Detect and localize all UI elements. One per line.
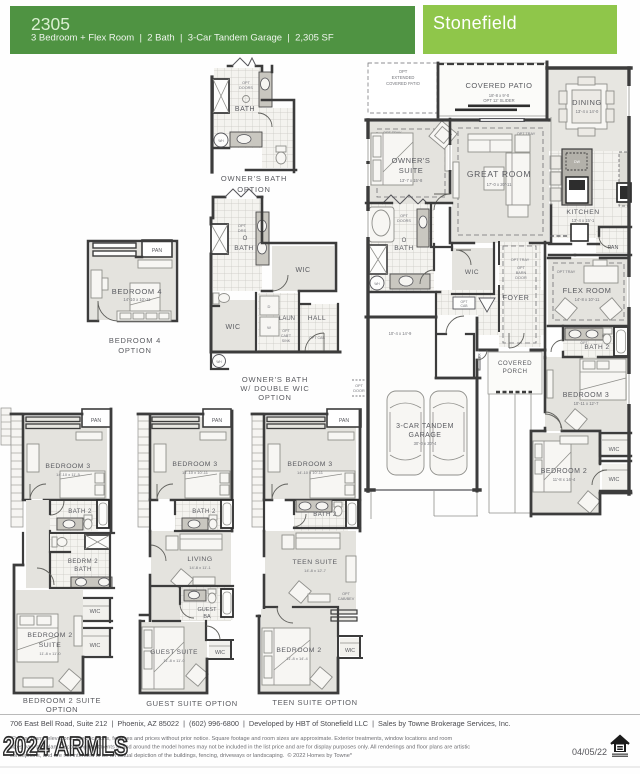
svg-text:BEDRM 2: BEDRM 2 xyxy=(68,559,98,565)
svg-text:D: D xyxy=(268,304,271,309)
svg-text:WH: WH xyxy=(374,282,380,286)
svg-text:11'-8 x 11'-0: 11'-8 x 11'-0 xyxy=(39,651,61,656)
svg-text:GARAGE: GARAGE xyxy=(409,432,442,439)
svg-text:BA: BA xyxy=(203,614,211,620)
svg-text:OPTION: OPTION xyxy=(237,185,271,194)
svg-text:13'-7 x 15'-8: 13'-7 x 15'-8 xyxy=(400,178,423,183)
svg-text:14'-8 x 12'-7: 14'-8 x 12'-7 xyxy=(304,568,327,573)
svg-text:DOOR: DOOR xyxy=(353,389,365,393)
svg-text:14'-10 x 10'-11: 14'-10 x 10'-11 xyxy=(182,470,209,475)
svg-text:OPT: OPT xyxy=(282,329,290,333)
svg-text:OPTION: OPTION xyxy=(258,393,292,402)
svg-text:BATH 2: BATH 2 xyxy=(192,509,216,515)
svg-text:BEDROOM 4: BEDROOM 4 xyxy=(109,336,161,345)
svg-text:W: W xyxy=(267,325,271,330)
svg-text:BATH 2: BATH 2 xyxy=(68,509,92,515)
svg-text:OPT: OPT xyxy=(400,214,408,218)
svg-text:04/05/22: 04/05/22 xyxy=(572,747,607,757)
svg-text:BEDROOM 2 SUITE: BEDROOM 2 SUITE xyxy=(23,696,101,705)
svg-text:WIC: WIC xyxy=(90,609,101,615)
svg-text:FLEX ROOM: FLEX ROOM xyxy=(563,286,612,295)
svg-text:BATH: BATH xyxy=(74,567,92,573)
svg-text:BEDROOM 4: BEDROOM 4 xyxy=(112,287,162,296)
svg-text:17'-0 x 20'-11: 17'-0 x 20'-11 xyxy=(487,182,512,187)
svg-text:BARN: BARN xyxy=(516,271,527,275)
svg-text:EXTENDED: EXTENDED xyxy=(392,75,415,80)
svg-text:KITCHEN: KITCHEN xyxy=(566,209,599,216)
svg-text:HALL: HALL xyxy=(308,315,326,322)
svg-text:PAN: PAN xyxy=(152,248,163,254)
svg-text:PORCH: PORCH xyxy=(503,368,528,375)
svg-text:WH: WH xyxy=(218,139,224,143)
svg-text:OPT TRAY: OPT TRAY xyxy=(511,258,530,262)
svg-text:TEEN SUITE: TEEN SUITE xyxy=(292,559,337,566)
svg-text:11'-8 x 11'-0: 11'-8 x 11'-0 xyxy=(163,658,185,663)
svg-text:COVERED PATIO: COVERED PATIO xyxy=(465,81,532,90)
svg-text:OPTION: OPTION xyxy=(118,346,152,355)
svg-text:OPT: OPT xyxy=(517,266,525,270)
svg-text:O: O xyxy=(243,236,248,242)
svg-text:DOORS: DOORS xyxy=(239,86,253,90)
svg-text:706 East Bell Road, Suite 212: 706 East Bell Road, Suite 212 | Phoenix,… xyxy=(10,719,511,728)
svg-text:FOYER: FOYER xyxy=(503,295,530,302)
svg-text:13'-4 x 15'-1: 13'-4 x 15'-1 xyxy=(572,218,595,223)
svg-text:GUEST SUITE: GUEST SUITE xyxy=(150,649,198,656)
svg-text:OPT: OPT xyxy=(242,81,250,85)
svg-text:14'-8 x 10'-11: 14'-8 x 10'-11 xyxy=(575,297,600,302)
svg-text:14'-10 x 10'-11: 14'-10 x 10'-11 xyxy=(123,297,151,302)
svg-text:GUEST: GUEST xyxy=(198,607,218,613)
svg-text:OPT: OPT xyxy=(355,384,363,388)
svg-text:WIC: WIC xyxy=(90,643,101,649)
svg-text:BEDROOM 2: BEDROOM 2 xyxy=(541,468,588,475)
svg-text:OPT 12' SLIDER: OPT 12' SLIDER xyxy=(483,98,514,103)
svg-text:BEDROOM 3: BEDROOM 3 xyxy=(287,461,332,468)
svg-text:10'-11 x 12'-7: 10'-11 x 12'-7 xyxy=(574,401,599,406)
svg-text:OWNER'S: OWNER'S xyxy=(392,156,431,165)
svg-text:COVERED PATIO: COVERED PATIO xyxy=(386,81,421,86)
svg-text:30'-0 x 20'-4: 30'-0 x 20'-4 xyxy=(414,441,437,446)
svg-text:WIC: WIC xyxy=(215,650,225,656)
svg-text:LIVING: LIVING xyxy=(187,556,212,563)
svg-text:TEEN SUITE OPTION: TEEN SUITE OPTION xyxy=(272,698,357,707)
svg-text:10'-4 x 14'-9: 10'-4 x 14'-9 xyxy=(389,331,412,336)
svg-text:SINK: SINK xyxy=(282,339,291,343)
svg-text:BATH: BATH xyxy=(394,245,414,252)
svg-text:GREAT ROOM: GREAT ROOM xyxy=(467,169,531,179)
svg-text:BEDROOM 2: BEDROOM 2 xyxy=(27,632,72,639)
svg-text:CAB/BEV: CAB/BEV xyxy=(338,597,355,601)
svg-text:COVERED: COVERED xyxy=(498,360,532,367)
svg-text:2024 ARMLS: 2024 ARMLS xyxy=(3,731,128,761)
svg-text:PAN: PAN xyxy=(339,418,350,424)
svg-text:WH: WH xyxy=(216,360,222,364)
svg-text:14'-10 x 10'-11: 14'-10 x 10'-11 xyxy=(297,470,324,475)
svg-text:BEDROOM 3: BEDROOM 3 xyxy=(172,461,217,468)
svg-text:DINING: DINING xyxy=(572,98,602,107)
svg-text:14'-10 x 11'-5: 14'-10 x 11'-5 xyxy=(56,472,80,477)
svg-text:11'-8 x 14'-4: 11'-8 x 14'-4 xyxy=(286,656,308,661)
svg-text:O: O xyxy=(402,238,407,244)
svg-text:DOORS: DOORS xyxy=(397,219,411,223)
svg-text:OPT TRAY: OPT TRAY xyxy=(557,270,576,274)
svg-text:LAUN: LAUN xyxy=(279,316,295,322)
svg-text:BEDROOM 3: BEDROOM 3 xyxy=(45,463,90,470)
svg-text:WIC: WIC xyxy=(225,324,240,331)
svg-text:WIC: WIC xyxy=(465,269,479,276)
svg-text:11'-8 x 14'-4: 11'-8 x 14'-4 xyxy=(553,477,576,482)
svg-text:SUITE: SUITE xyxy=(39,642,62,649)
svg-text:DRS: DRS xyxy=(238,228,247,233)
svg-text:BATH 2: BATH 2 xyxy=(313,512,337,518)
svg-text:3 Bedroom + Flex Room | 2 Ba: 3 Bedroom + Flex Room | 2 Bath | 3-Car T… xyxy=(31,33,334,44)
svg-text:BEDROOM 3: BEDROOM 3 xyxy=(563,392,610,399)
svg-text:SUITE: SUITE xyxy=(399,166,424,175)
svg-text:OWNER'S BATH: OWNER'S BATH xyxy=(242,375,308,384)
svg-text:OPTION: OPTION xyxy=(46,705,78,714)
svg-text:13'-4 x 14'-0: 13'-4 x 14'-0 xyxy=(576,109,599,114)
svg-text:PAN: PAN xyxy=(91,418,102,424)
svg-text:14'-8 x 11'-1: 14'-8 x 11'-1 xyxy=(189,565,211,570)
svg-text:PAN: PAN xyxy=(212,418,223,424)
svg-text:WIC: WIC xyxy=(609,447,620,453)
svg-text:OPT: OPT xyxy=(580,341,588,345)
svg-text:WIC: WIC xyxy=(345,648,355,654)
svg-text:2305: 2305 xyxy=(31,14,70,34)
svg-text:BATH: BATH xyxy=(234,245,254,252)
svg-text:3-CAR TANDEM: 3-CAR TANDEM xyxy=(396,423,454,430)
svg-text:WIC: WIC xyxy=(295,267,310,274)
svg-text:WIC: WIC xyxy=(609,477,620,483)
svg-text:CAB'T: CAB'T xyxy=(281,334,292,338)
svg-text:W/ DOUBLE WIC: W/ DOUBLE WIC xyxy=(240,384,309,393)
svg-text:BATH: BATH xyxy=(235,106,255,113)
svg-text:OPT: OPT xyxy=(342,592,350,596)
svg-text:CAB: CAB xyxy=(461,304,469,308)
svg-text:Stonefield: Stonefield xyxy=(433,13,517,33)
svg-text:DOOR: DOOR xyxy=(515,276,527,280)
svg-text:DW: DW xyxy=(574,160,581,164)
svg-text:BATH 2: BATH 2 xyxy=(584,344,609,351)
svg-text:GUEST SUITE OPTION: GUEST SUITE OPTION xyxy=(146,699,238,708)
svg-text:OPT: OPT xyxy=(399,69,408,74)
svg-text:BEDROOM 2: BEDROOM 2 xyxy=(276,647,321,654)
svg-text:OWNER'S BATH: OWNER'S BATH xyxy=(221,174,287,183)
